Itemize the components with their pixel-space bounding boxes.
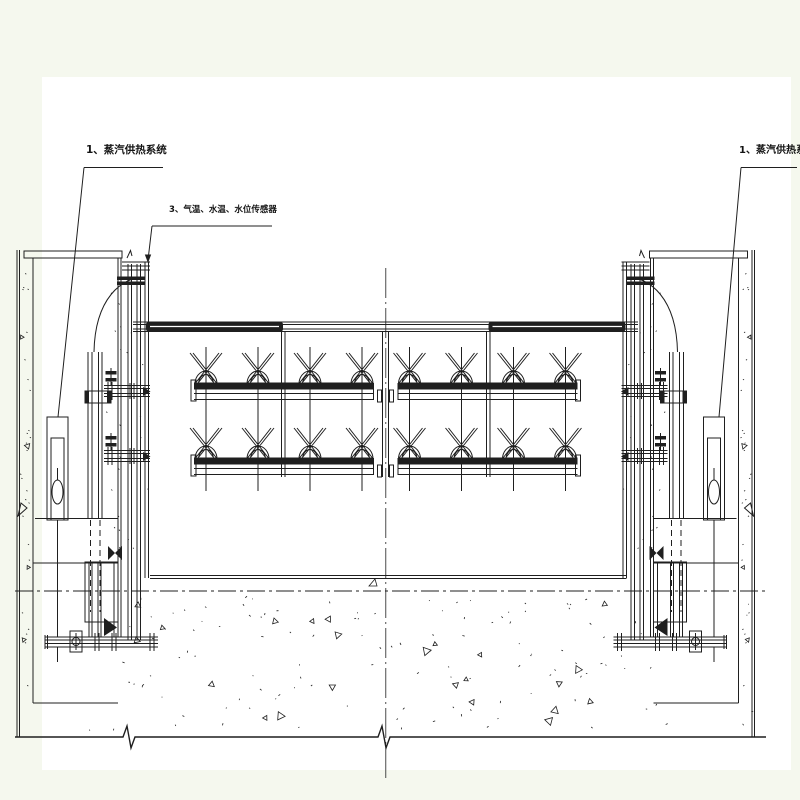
label-steam-system-right: 1、蒸汽供热系统 (739, 143, 800, 156)
engineering-drawing: 1、蒸汽供热系统 3、气温、水温、水位传感器 1、蒸汽供热系统 (0, 0, 800, 800)
sheet-area (42, 77, 791, 770)
drawing-sheet: 1、蒸汽供热系统 3、气温、水温、水位传感器 1、蒸汽供热系统 (0, 0, 800, 800)
label-steam-system-left: 1、蒸汽供热系统 (86, 143, 167, 156)
label-sensors: 3、气温、水温、水位传感器 (169, 204, 277, 215)
